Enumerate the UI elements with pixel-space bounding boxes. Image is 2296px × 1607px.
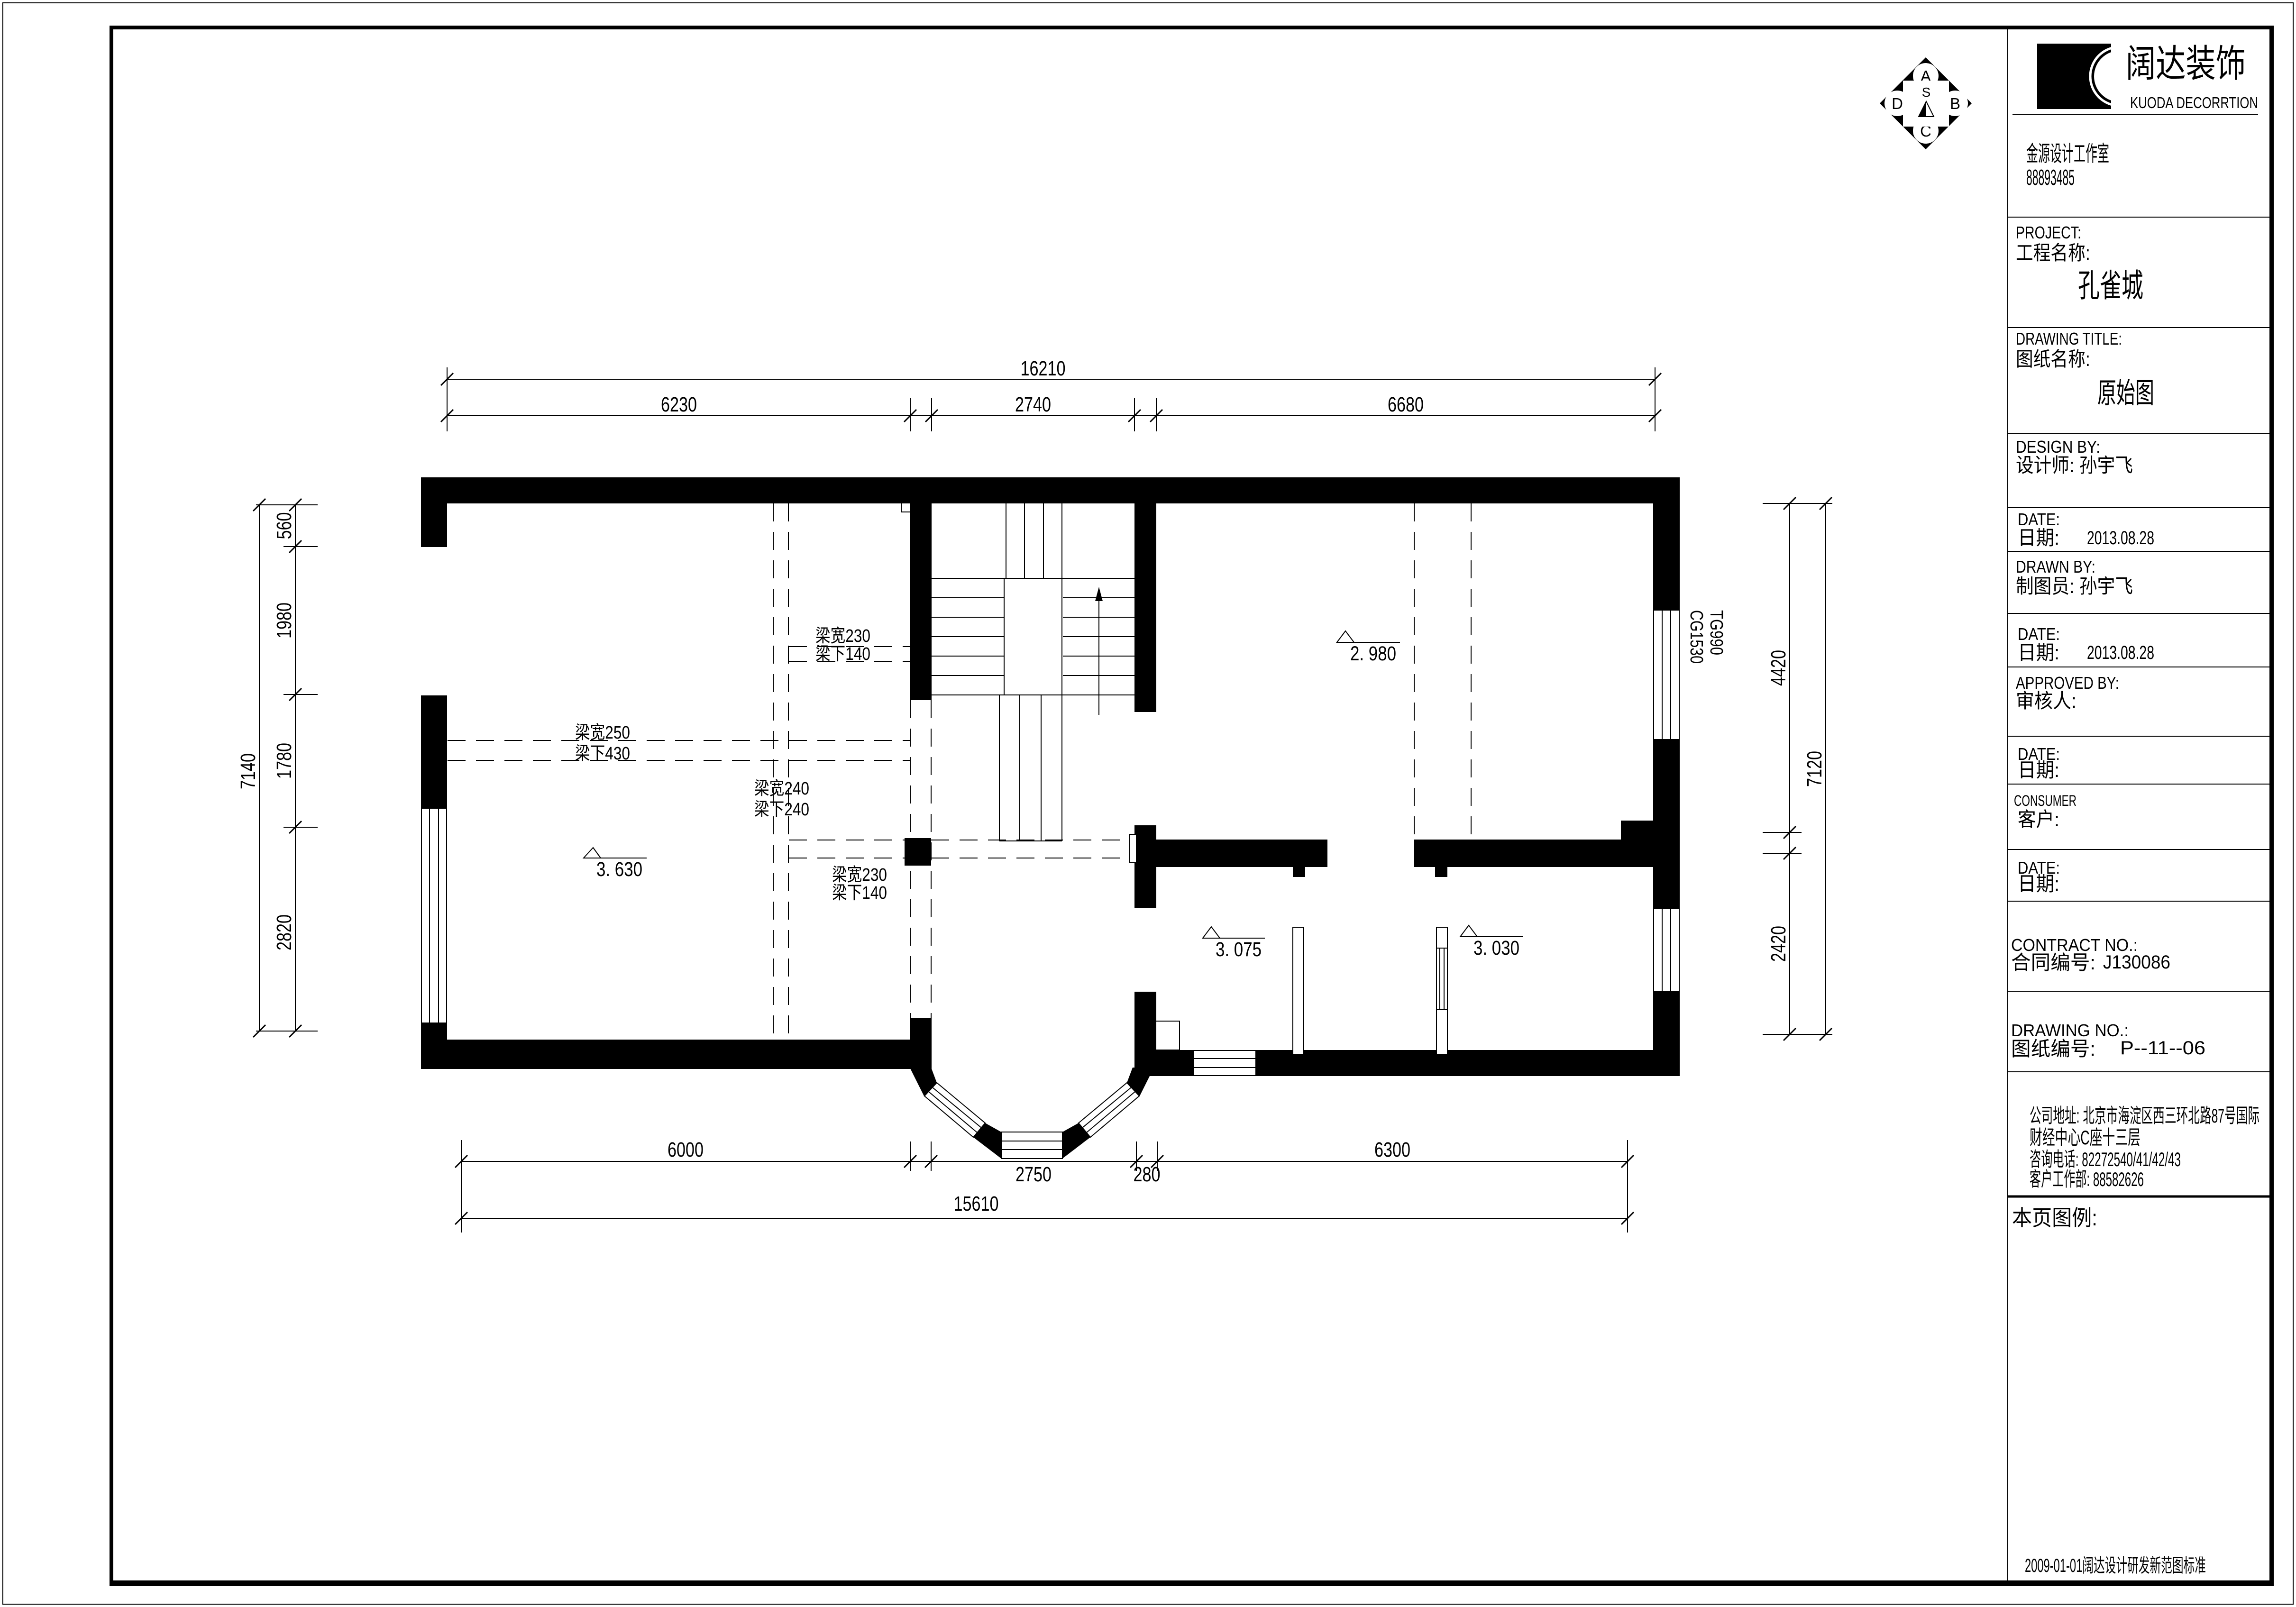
- svg-text:梁宽230: 梁宽230: [832, 865, 887, 885]
- svg-text:2. 980: 2. 980: [1350, 642, 1396, 665]
- svg-text:6300: 6300: [1374, 1138, 1410, 1161]
- svg-text:阔达装饰: 阔达装饰: [2126, 43, 2246, 85]
- svg-text:DATE:: DATE:: [2018, 624, 2060, 644]
- svg-text:16210: 16210: [1021, 357, 1066, 380]
- svg-text:TG990: TG990: [1706, 610, 1726, 655]
- svg-text:工程名称:: 工程名称:: [2016, 242, 2090, 264]
- svg-text:PROJECT:: PROJECT:: [2016, 223, 2081, 242]
- svg-text:客户:: 客户:: [2018, 808, 2059, 831]
- svg-text:3. 030: 3. 030: [1473, 937, 1519, 959]
- svg-text:DATE:: DATE:: [2018, 510, 2060, 529]
- svg-text:B: B: [1950, 95, 1960, 112]
- svg-text:客户工作部: 88582626: 客户工作部: 88582626: [2030, 1168, 2144, 1190]
- svg-text:CG1530: CG1530: [1686, 610, 1706, 664]
- svg-text:合同编号:: 合同编号:: [2011, 951, 2095, 974]
- svg-text:2740: 2740: [1015, 393, 1051, 416]
- svg-text:DRAWING TITLE:: DRAWING TITLE:: [2016, 329, 2122, 348]
- svg-text:DESIGN BY:: DESIGN BY:: [2016, 437, 2100, 457]
- svg-text:560: 560: [273, 512, 296, 539]
- svg-text:日期:: 日期:: [2018, 641, 2059, 664]
- svg-text:图纸编号:: 图纸编号:: [2011, 1038, 2095, 1060]
- svg-text:财经中心C座十三层: 财经中心C座十三层: [2030, 1126, 2140, 1149]
- svg-text:日期:: 日期:: [2018, 759, 2059, 781]
- svg-text:制图员: 孙宇飞: 制图员: 孙宇飞: [2016, 575, 2133, 597]
- svg-text:KUODA DECORRTION: KUODA DECORRTION: [2130, 94, 2258, 111]
- svg-text:6230: 6230: [661, 393, 697, 416]
- svg-text:4420: 4420: [1767, 650, 1790, 686]
- svg-text:2013.08.28: 2013.08.28: [2087, 642, 2154, 663]
- svg-text:咨询电话: 82272540/41/42/43: 咨询电话: 82272540/41/42/43: [2030, 1148, 2181, 1170]
- svg-text:梁宽240: 梁宽240: [754, 779, 809, 799]
- svg-text:2750: 2750: [1015, 1163, 1052, 1186]
- svg-text:J130086: J130086: [2103, 952, 2170, 973]
- svg-text:公司地址: 北京市海淀区西三环北路87号国际: 公司地址: 北京市海淀区西三环北路87号国际: [2030, 1105, 2259, 1127]
- svg-text:审核人:: 审核人:: [2016, 690, 2076, 712]
- svg-text:日期:: 日期:: [2018, 873, 2059, 895]
- svg-text:3. 075: 3. 075: [1216, 938, 1262, 961]
- svg-text:梁宽250: 梁宽250: [575, 723, 630, 743]
- svg-text:孔雀城: 孔雀城: [2078, 268, 2143, 304]
- svg-text:3. 630: 3. 630: [596, 858, 642, 881]
- svg-text:P--11--06: P--11--06: [2120, 1038, 2205, 1059]
- svg-text:CONSUMER: CONSUMER: [2014, 792, 2076, 809]
- svg-text:2009-01-01阔达设计研发新范图标准: 2009-01-01阔达设计研发新范图标准: [2025, 1555, 2206, 1576]
- svg-text:梁下140: 梁下140: [832, 883, 887, 903]
- svg-text:设计师: 孙宇飞: 设计师: 孙宇飞: [2016, 454, 2133, 476]
- svg-text:本页图例:: 本页图例:: [2012, 1205, 2097, 1230]
- svg-text:梁下240: 梁下240: [754, 800, 809, 820]
- svg-text:原始图: 原始图: [2097, 377, 2154, 409]
- svg-text:88893485: 88893485: [2026, 165, 2075, 190]
- svg-text:2013.08.28: 2013.08.28: [2087, 528, 2154, 548]
- svg-text:D: D: [1892, 95, 1903, 112]
- svg-text:280: 280: [1134, 1163, 1161, 1186]
- svg-text:6000: 6000: [668, 1138, 704, 1161]
- svg-text:S: S: [1922, 85, 1931, 100]
- svg-text:DRAWN BY:: DRAWN BY:: [2016, 557, 2095, 576]
- svg-text:6680: 6680: [1388, 393, 1424, 416]
- svg-text:15610: 15610: [954, 1192, 999, 1215]
- svg-text:图纸名称:: 图纸名称:: [2016, 348, 2090, 370]
- svg-text:7140: 7140: [237, 753, 260, 789]
- svg-text:2820: 2820: [273, 914, 296, 950]
- svg-text:梁宽230: 梁宽230: [815, 626, 870, 646]
- svg-text:1980: 1980: [273, 603, 296, 639]
- svg-text:金源设计工作室: 金源设计工作室: [2026, 141, 2109, 166]
- svg-text:梁下140: 梁下140: [815, 644, 870, 664]
- svg-text:1780: 1780: [273, 743, 296, 779]
- svg-text:DRAWING NO.:: DRAWING NO.:: [2011, 1021, 2129, 1040]
- svg-text:日期:: 日期:: [2018, 527, 2059, 549]
- svg-text:2420: 2420: [1767, 926, 1790, 962]
- svg-text:梁下430: 梁下430: [575, 744, 630, 764]
- svg-text:7120: 7120: [1803, 751, 1826, 787]
